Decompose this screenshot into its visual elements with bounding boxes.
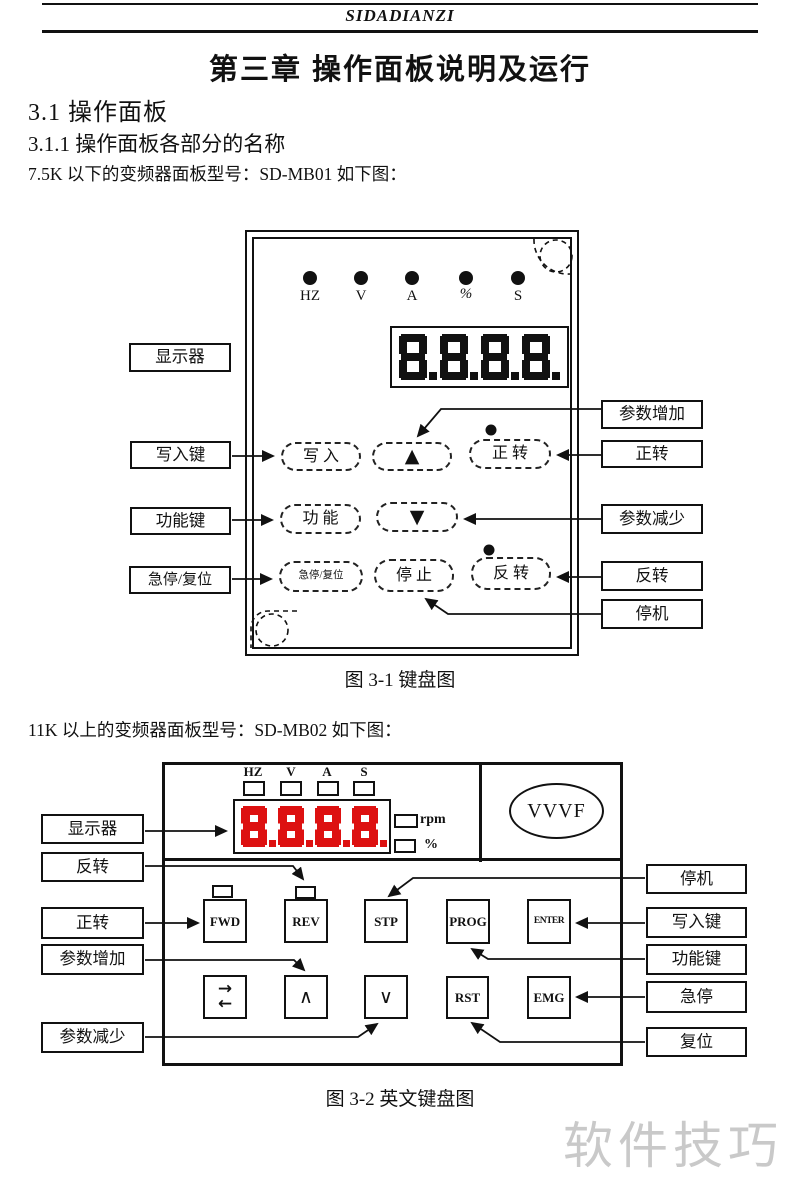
fig2-indicator-hz: HZ — [235, 764, 271, 780]
fig2-callout-param-increase: 参数增加 — [41, 944, 144, 975]
fig1-callout-param-decrease: 参数减少 — [601, 504, 703, 534]
paragraph-sd-mb01: 7.5K 以下的变频器面板型号：SD-MB01 如下图： — [28, 161, 407, 186]
fig2-enter-button: ENTER — [527, 899, 571, 944]
fig1-indicator-percent: % — [444, 286, 488, 303]
fig2-callout-param-decrease: 参数减少 — [41, 1022, 144, 1053]
brand-header: SIDADIANZI — [0, 6, 800, 26]
fig2-v-led-square — [280, 781, 302, 796]
fig2-fwd-led-square — [212, 885, 233, 898]
fig2-rst-button: RST — [446, 976, 489, 1019]
fig2-emg-button: EMG — [527, 976, 571, 1019]
fig2-callout-write-key: 写入键 — [646, 907, 747, 938]
fig1-reverse-button: 反 转 — [471, 557, 551, 590]
fig2-panel-divider-horizontal — [162, 858, 623, 861]
fig1-up-arrow-button: ▲ — [372, 442, 452, 471]
fig1-callout-forward: 正转 — [601, 440, 703, 468]
fig2-rev-button: REV — [284, 899, 328, 943]
fig1-indicator-hz: HZ — [288, 288, 332, 305]
header-top-rule — [42, 3, 758, 5]
fig1-callout-write-key: 写入键 — [130, 441, 231, 469]
fig2-prog-button: PROG — [446, 899, 490, 944]
fig1-down-arrow-button: ▼ — [376, 502, 458, 532]
fig2-stp-button: STP — [364, 899, 408, 943]
fig2-callout-forward: 正转 — [41, 907, 144, 939]
fig2-up-button: ∧ — [284, 975, 328, 1019]
header-bottom-rule — [42, 30, 758, 33]
left-arrow-icon: ← — [218, 997, 232, 1012]
fig2-shift-button: →← — [203, 975, 247, 1019]
fig1-function-button: 功 能 — [280, 504, 361, 534]
fig1-callout-param-increase: 参数增加 — [601, 400, 703, 429]
fig1-callout-stop: 停机 — [601, 599, 703, 629]
fig2-indicator-a: A — [309, 764, 345, 780]
paragraph-sd-mb02: 11K 以上的变频器面板型号：SD-MB02 如下图： — [28, 717, 402, 742]
fig2-a-led-square — [317, 781, 339, 796]
fig2-callout-function-key: 功能键 — [646, 944, 747, 975]
section-3-1-heading: 3.1 操作面板 — [28, 92, 168, 127]
fig2-callout-estop: 急停 — [646, 981, 747, 1013]
fig1-indicator-a: A — [390, 288, 434, 305]
fig1-callout-estop-reset: 急停/复位 — [129, 566, 231, 594]
fig1-callout-display: 显示器 — [129, 343, 231, 372]
fig1-seven-segment-display — [390, 326, 569, 388]
fig2-callout-display: 显示器 — [41, 814, 144, 844]
fig1-stop-button: 停 止 — [374, 559, 454, 592]
fig1-write-button: 写 入 — [281, 442, 361, 471]
fig2-percent-label: % — [424, 837, 438, 853]
fig2-callout-reverse: 反转 — [41, 852, 144, 882]
fig2-callout-reset: 复位 — [646, 1027, 747, 1057]
fig2-indicator-v: V — [273, 764, 309, 780]
chapter-title: 第三章 操作面板说明及运行 — [0, 46, 800, 88]
fig1-callout-function-key: 功能键 — [130, 507, 231, 535]
fig1-caption: 图 3-1 键盘图 — [0, 665, 800, 692]
fig1-callout-reverse: 反转 — [601, 561, 703, 591]
manual-page: { "page": { "brand": "SIDADIANZI", "chap… — [0, 0, 800, 1199]
fig1-forward-button: 正 转 — [469, 439, 551, 469]
fig2-indicator-s: S — [346, 764, 382, 780]
fig1-indicator-s: S — [496, 288, 540, 305]
fig2-panel-divider-vertical — [479, 762, 482, 862]
section-3-1-1-heading: 3.1.1 操作面板各部分的名称 — [28, 128, 285, 158]
fig2-down-button: ∨ — [364, 975, 408, 1019]
fig1-estop-reset-button: 急停/复位 — [279, 561, 363, 592]
fig2-fwd-button: FWD — [203, 899, 247, 943]
fig2-vvvf-logo: VVVF — [509, 783, 604, 839]
fig2-percent-led-square — [394, 839, 416, 853]
fig2-hz-led-square — [243, 781, 265, 796]
fig2-rev-led-square — [295, 886, 316, 899]
fig2-s-led-square — [353, 781, 375, 796]
fig2-rpm-label: rpm — [420, 812, 446, 828]
watermark-text: 软件技巧 — [563, 1106, 800, 1178]
fig2-rpm-led-square — [394, 814, 418, 828]
fig2-callout-stop: 停机 — [646, 864, 747, 894]
fig2-seven-segment-display — [233, 799, 391, 854]
fig1-indicator-v: V — [339, 288, 383, 305]
